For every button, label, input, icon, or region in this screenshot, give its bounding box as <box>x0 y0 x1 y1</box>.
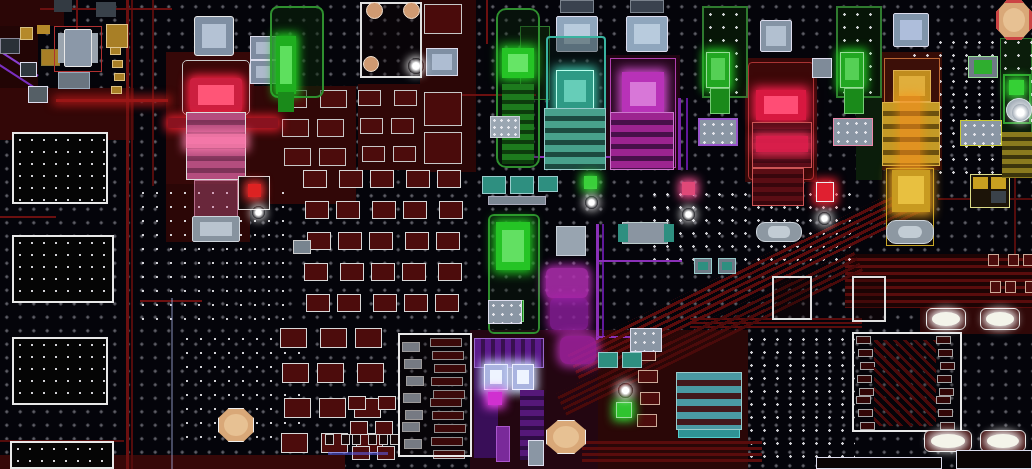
smd-pad[interactable] <box>406 170 430 188</box>
smd-pad[interactable] <box>348 396 366 410</box>
ic-soic[interactable] <box>64 29 92 67</box>
smd-pad[interactable] <box>368 434 377 445</box>
smd-pad[interactable] <box>320 90 347 108</box>
inductor-teal-striped[interactable] <box>676 372 742 430</box>
connector-6pad[interactable] <box>488 300 522 324</box>
trace-red[interactable] <box>0 216 56 218</box>
smd-pad[interactable] <box>320 328 347 348</box>
smd-pad[interactable] <box>393 146 416 162</box>
led-green[interactable] <box>584 176 597 189</box>
highlighted-via <box>1012 104 1029 121</box>
smd-pad[interactable] <box>370 170 394 188</box>
trace-purple[interactable] <box>596 260 682 262</box>
trace-red[interactable] <box>152 0 154 186</box>
small-component[interactable] <box>560 0 594 13</box>
mounting-hole-core <box>224 414 248 436</box>
smd-pad[interactable] <box>391 118 414 134</box>
smd-pad[interactable] <box>282 363 309 383</box>
component-teal[interactable] <box>618 224 628 242</box>
led-pink[interactable] <box>682 182 695 195</box>
connector-footprint[interactable] <box>12 235 114 303</box>
component-teal[interactable] <box>598 352 618 368</box>
smd-pad-large[interactable] <box>424 4 462 34</box>
smd-pad[interactable] <box>325 434 334 445</box>
component-teal[interactable] <box>510 176 534 194</box>
pcb-layout-canvas[interactable] <box>0 0 1032 469</box>
smd-pad[interactable] <box>358 90 381 106</box>
smd-pad[interactable] <box>341 434 350 445</box>
annotation-blue <box>328 452 388 455</box>
capacitor[interactable] <box>812 58 832 78</box>
solder-pad-silver <box>986 312 1014 326</box>
highlighted-via <box>252 206 265 219</box>
smd-pad[interactable] <box>402 263 426 281</box>
ic-pins <box>92 33 98 63</box>
smd-pad[interactable] <box>1023 254 1032 266</box>
solder-pad-silver <box>987 434 1019 448</box>
highlighted-via <box>682 208 695 221</box>
glow-band-pink <box>186 134 246 148</box>
trace-escape-diagonal[interactable] <box>874 340 936 426</box>
component-green-core <box>508 54 528 72</box>
connector-6pad[interactable] <box>630 328 662 352</box>
component-green[interactable] <box>1009 80 1024 95</box>
led-magenta[interactable] <box>488 392 502 405</box>
capacitor-core <box>200 222 232 236</box>
small-component[interactable] <box>488 196 546 205</box>
smd-pad[interactable] <box>282 119 309 137</box>
component-purple[interactable] <box>496 426 510 462</box>
component-teal[interactable] <box>622 352 642 368</box>
gold-pad[interactable] <box>37 25 50 34</box>
gold-pin[interactable] <box>112 60 123 68</box>
smd-pad[interactable] <box>1008 254 1019 266</box>
smd-pad[interactable] <box>369 232 393 250</box>
component-green-core <box>280 46 292 84</box>
smd-pad[interactable] <box>394 90 417 106</box>
trace-bundle[interactable] <box>582 438 762 462</box>
component-yellow-core <box>899 76 925 96</box>
component-magenta-core <box>630 82 656 106</box>
mounting-hole-core <box>553 426 579 448</box>
led-green[interactable] <box>616 402 632 418</box>
gold-pin[interactable] <box>114 73 125 81</box>
highlighted-via <box>818 212 831 225</box>
inductor-teal-striped[interactable] <box>544 108 606 170</box>
smd-pad[interactable] <box>319 148 346 166</box>
smd-pad[interactable] <box>1005 281 1016 293</box>
component-white-core <box>490 370 502 384</box>
smd-pad-large[interactable] <box>424 132 462 164</box>
small-component[interactable] <box>58 72 90 89</box>
gold-pad[interactable] <box>106 24 128 48</box>
mounting-hole-core <box>1003 8 1025 32</box>
trace-silk-line <box>171 298 173 469</box>
smd-pad[interactable] <box>362 146 385 162</box>
trace-purple[interactable] <box>678 98 681 170</box>
component-crimson-core <box>764 96 798 114</box>
component-gray[interactable] <box>622 222 668 244</box>
component-teal-core <box>698 262 708 270</box>
smd-pad[interactable] <box>350 421 368 435</box>
connector-footprint[interactable] <box>398 333 472 457</box>
connector-6pad[interactable] <box>698 118 738 146</box>
component-white-core <box>517 370 529 384</box>
component-yellow[interactable] <box>991 177 1006 189</box>
smd-pad[interactable] <box>988 254 999 266</box>
component-green[interactable] <box>278 92 294 112</box>
inductor-glow-core <box>198 85 234 105</box>
smd-pad[interactable] <box>357 363 384 383</box>
smd-pad[interactable] <box>339 170 363 188</box>
capacitor-core <box>202 24 226 48</box>
smd-pad[interactable] <box>403 201 427 219</box>
glow-blob-magenta <box>560 336 596 364</box>
component-green-core <box>711 58 725 80</box>
capacitor-core <box>634 24 660 44</box>
glow-band-crimson <box>756 136 808 152</box>
small-component[interactable] <box>20 62 37 77</box>
component-green[interactable] <box>710 88 730 114</box>
inductor-olive-striped[interactable] <box>1002 132 1032 178</box>
small-component[interactable] <box>630 0 664 13</box>
trace-red[interactable] <box>126 0 129 469</box>
smd-pad[interactable] <box>404 294 428 312</box>
glow-blob-magenta <box>546 268 588 298</box>
smd-pad[interactable] <box>355 328 382 348</box>
smd-pad[interactable] <box>372 201 396 219</box>
highlighted-via <box>408 58 424 74</box>
footprint-outline[interactable] <box>772 276 812 320</box>
smd-pad[interactable] <box>340 263 364 281</box>
smd-pad-large[interactable] <box>424 92 462 126</box>
mounting-hole-pad[interactable] <box>366 2 383 19</box>
capacitor-core <box>898 226 922 238</box>
trace-red[interactable] <box>486 0 488 44</box>
small-component[interactable] <box>54 0 72 12</box>
smd-pad[interactable] <box>319 398 346 418</box>
smd-pad[interactable] <box>640 392 660 405</box>
small-component[interactable] <box>96 2 116 17</box>
component-teal-core <box>722 262 732 270</box>
inductor-dark-striped[interactable] <box>752 168 804 206</box>
component-green-core <box>974 60 992 74</box>
connector-footprint[interactable] <box>12 132 108 204</box>
smd-pad[interactable] <box>379 434 388 445</box>
gold-pin[interactable] <box>111 86 122 94</box>
smd-pad[interactable] <box>378 396 396 410</box>
glow-blob-magenta <box>550 298 588 330</box>
capacitor-core <box>766 26 786 46</box>
component-teal[interactable] <box>664 224 674 242</box>
connector-6pad[interactable] <box>833 118 873 146</box>
smd-pad[interactable] <box>405 232 429 250</box>
small-component[interactable] <box>991 191 1006 203</box>
smd-pad[interactable] <box>360 118 383 134</box>
trace-red[interactable] <box>1014 178 1016 260</box>
smd-pad[interactable] <box>352 434 361 445</box>
component-teal[interactable] <box>482 176 506 194</box>
capacitor-core <box>432 54 452 70</box>
solder-pad-silver <box>932 312 960 326</box>
smd-pad[interactable] <box>436 232 460 250</box>
smd-pad[interactable] <box>303 170 327 188</box>
smd-pad[interactable] <box>306 294 330 312</box>
pad-gray-square[interactable] <box>556 226 586 256</box>
solder-pad-silver <box>931 434 965 448</box>
trace-red[interactable] <box>56 99 168 102</box>
trace-purple[interactable] <box>686 98 688 170</box>
pad-checkered[interactable] <box>490 116 520 138</box>
smd-pad[interactable] <box>439 201 463 219</box>
connector-6pad[interactable] <box>960 120 1002 146</box>
smd-pad[interactable] <box>317 119 344 137</box>
smd-pad[interactable] <box>317 363 344 383</box>
smd-pad[interactable] <box>437 170 461 188</box>
connector-footprint[interactable] <box>10 441 114 469</box>
component-teal[interactable] <box>538 176 558 192</box>
smd-pad[interactable] <box>284 148 311 166</box>
smd-pad[interactable] <box>1025 281 1032 293</box>
led-red[interactable] <box>248 184 261 197</box>
smd-pad[interactable] <box>990 281 1001 293</box>
component-yellow[interactable] <box>973 177 988 189</box>
highlighted-via <box>585 196 598 209</box>
component-yellow-core <box>898 176 924 204</box>
smd-pad[interactable] <box>304 263 328 281</box>
smd-pad[interactable] <box>373 294 397 312</box>
component-teal-core <box>564 80 586 102</box>
smd-pad[interactable] <box>281 433 308 453</box>
smd-pad[interactable] <box>280 328 307 348</box>
small-component[interactable] <box>293 240 311 254</box>
inductor-magenta-striped[interactable] <box>610 112 674 170</box>
led-red[interactable] <box>816 182 834 202</box>
smd-pad[interactable] <box>375 421 393 435</box>
mounting-hole-pad[interactable] <box>363 56 379 72</box>
component-green-core <box>845 58 859 80</box>
smd-pad[interactable] <box>638 370 658 383</box>
smd-pad[interactable] <box>337 294 361 312</box>
small-component[interactable] <box>28 86 48 103</box>
smd-pad[interactable] <box>336 201 360 219</box>
footprint-outline[interactable] <box>852 276 886 322</box>
smd-pad[interactable] <box>637 414 657 427</box>
trace-purple[interactable] <box>602 224 604 340</box>
footprint-outline[interactable] <box>956 450 1032 469</box>
glow-band-orange <box>900 96 920 172</box>
capacitor-core <box>768 226 790 238</box>
trace-red[interactable] <box>131 0 133 469</box>
smd-pad[interactable] <box>371 263 395 281</box>
component-green[interactable] <box>844 88 864 114</box>
highlighted-via <box>618 383 633 398</box>
smd-pad[interactable] <box>438 263 462 281</box>
smd-pad[interactable] <box>284 398 311 418</box>
footprint-outline[interactable] <box>816 457 942 469</box>
mounting-hole-pad[interactable] <box>403 2 420 19</box>
trace-purple[interactable] <box>596 224 599 340</box>
small-component[interactable] <box>528 440 544 466</box>
component-green-core <box>502 230 524 262</box>
smd-pad[interactable] <box>435 294 459 312</box>
gold-pad[interactable] <box>20 27 33 40</box>
gold-pin[interactable] <box>110 47 121 55</box>
capacitor-core <box>900 20 922 40</box>
connector-footprint[interactable] <box>12 337 108 405</box>
smd-pad[interactable] <box>305 201 329 219</box>
smd-pad[interactable] <box>338 232 362 250</box>
small-component[interactable] <box>0 38 20 54</box>
